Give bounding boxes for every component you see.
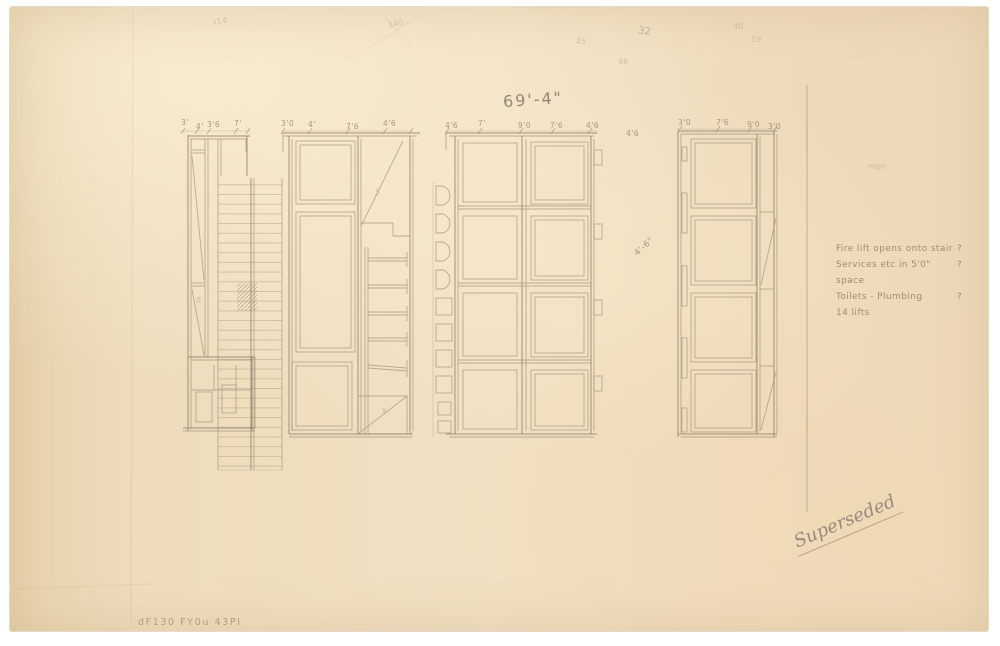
note-question-mark: ? [957, 289, 962, 305]
dim-label: 3'0 [768, 122, 781, 131]
dim-label: 4' [308, 120, 316, 129]
block3-structural-grid [446, 133, 602, 437]
faint-scribble: x [382, 406, 387, 415]
service-strip [433, 182, 452, 437]
note-row: Fire lift opens onto stair ? [836, 241, 962, 257]
dim-label: 7' [234, 119, 242, 128]
faint-scribble: 40 [733, 22, 743, 31]
note-text: 14 lifts [836, 305, 870, 321]
faint-scribble: 8 [196, 296, 201, 305]
faint-scribble-strokes [343, 12, 422, 61]
pencil-plan-drawing [0, 0, 1000, 646]
note-text: Fire lift opens onto stair [836, 241, 953, 257]
dim-label: 3'6 [207, 120, 220, 129]
dim-label: 7'6 [716, 118, 729, 127]
note-question-mark: ? [957, 257, 962, 289]
faint-scribble: 32 [637, 25, 651, 38]
dim-label: 4'6 [586, 121, 599, 130]
dim-label: 4' [196, 122, 204, 131]
faint-scribble: 5 [375, 188, 380, 197]
dim-label: 3' [181, 118, 189, 127]
dim-label: 7'6 [550, 121, 563, 130]
dim-label: 3'0 [678, 118, 691, 127]
note-row: 14 lifts [836, 305, 962, 321]
faint-scribble: 45 [576, 37, 586, 46]
dim-label: 9'0 [747, 120, 760, 129]
drawing-stage: 69'-4" 3' 4' 3'6 7' 3'0 4' 7'6 4'6 4'6 7… [0, 0, 1000, 646]
archive-inscription: dF130 FY0u 43PI [138, 617, 242, 628]
note-question-mark: ? [957, 241, 962, 257]
paper-creases [15, 10, 152, 628]
dim-label: 3'0 [281, 119, 294, 128]
note-text: Toilets - Plumbing [836, 289, 922, 305]
dim-label-gap: 4'6 [626, 129, 639, 138]
block2-lift-shafts [283, 133, 420, 437]
dim-label: 4'6 [383, 119, 396, 128]
dim-label: 9'0 [518, 121, 531, 130]
dim-label: 4'6 [445, 121, 458, 130]
note-row: Toilets - Plumbing ? [836, 289, 962, 305]
design-notes: Fire lift opens onto stair ? Services et… [836, 241, 962, 321]
faint-scribble: mph [868, 162, 886, 171]
dim-label: 7'6 [346, 122, 359, 131]
faint-scribble: 1d [751, 35, 761, 44]
faint-scribble: 46 [618, 57, 628, 66]
dim-label: 7' [478, 119, 486, 128]
scanned-drawing-sheet: 69'-4" 3' 4' 3'6 7' 3'0 4' 7'6 4'6 4'6 7… [0, 0, 1000, 646]
block4-braced-bay [678, 131, 777, 437]
note-text: Services etc in 5'0" space [836, 257, 957, 289]
note-row: Services etc in 5'0" space ? [836, 257, 962, 289]
